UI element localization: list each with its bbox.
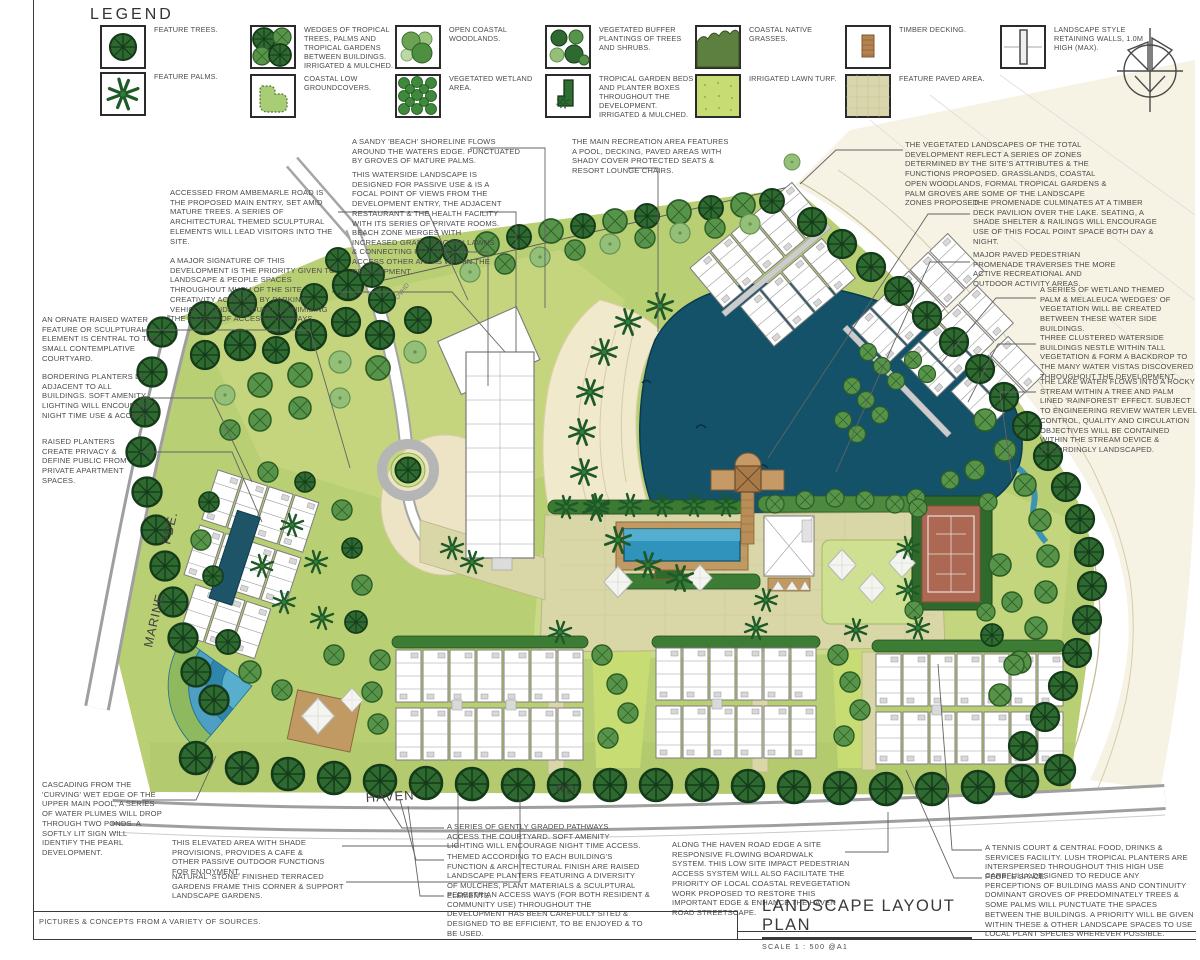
landscape-plan-sheet: { "legend": { "title": "LEGEND", "items"…: [0, 0, 1200, 960]
central-facility-building: [764, 516, 814, 591]
legend-item-lawn-turf: IRRIGATED LAWN TURF.: [695, 74, 845, 118]
annotation-bordering-planters: BORDERING PLANTERS LIE ADJACENT TO ALL B…: [42, 372, 154, 421]
footer-note: PICTURES & CONCEPTS FROM A VARIETY OF SO…: [39, 917, 261, 926]
annotation-waterside-landscape: THIS WATERSIDE LANDSCAPE IS DESIGNED FOR…: [352, 170, 502, 228]
legend-title: LEGEND: [90, 6, 174, 24]
feature-palms-icon: [100, 72, 146, 116]
legend-item-timber-decking: TIMBER DECKING.: [845, 25, 995, 69]
legend-label: COASTAL NATIVE GRASSES.: [749, 26, 845, 44]
open-woodlands-icon: [395, 25, 441, 69]
annotation-promenade-pavilion: THE PROMENADE CULMINATES AT A TIMBER DEC…: [973, 198, 1158, 247]
annotation-building-mass: CAREFULLY DESIGNED TO REDUCE ANY PERCEPT…: [985, 871, 1197, 939]
sheet-rule-bottom: [33, 939, 1196, 940]
lawn-turf-icon: [695, 74, 741, 118]
roundabout-tree: [396, 458, 421, 483]
legend-label: OPEN COASTAL WOODLANDS.: [449, 26, 545, 44]
annotation-sandy-beach: A SANDY 'BEACH' SHORELINE FLOWS AROUND T…: [352, 137, 522, 166]
annotation-major-signature: A MAJOR SIGNATURE OF THIS DEVELOPMENT IS…: [170, 256, 342, 324]
annotation-graded-pathways: A SERIES OF GENTLY GRADED PATHWAYS ACCES…: [447, 822, 642, 851]
annotation-stone-terraces: NATURAL 'STONE' FINISHED TERRACED GARDEN…: [172, 872, 347, 901]
legend-label: WEDGES OF TROPICAL TREES, PALMS AND TROP…: [304, 26, 400, 70]
legend-label: TROPICAL GARDEN BEDS AND PLANTER BOXES T…: [599, 75, 695, 119]
annotation-pedestrian-access: PEDESTRIAN ACCESS WAYS (FOR BOTH RESIDEN…: [447, 890, 652, 939]
wetland-area-icon: [395, 74, 441, 118]
tropical-wedges-icon: [250, 25, 296, 69]
road-label-haven: HAVEN: [365, 787, 415, 805]
road-label-rd: RD.: [556, 781, 582, 797]
annotation-main-entry: ACCESSED FROM AMBEMARLE ROAD IS THE PROP…: [170, 188, 340, 246]
legend-label: TIMBER DECKING.: [899, 26, 995, 35]
legend-item-vegetated-buffer: VEGETATED BUFFER PLANTINGS OF TREES AND …: [545, 25, 695, 69]
garden-beds-icon: [545, 74, 591, 118]
sheet-scale: SCALE 1 : 500 @A1: [762, 942, 972, 951]
legend-item-feature-trees: FEATURE TREES.: [100, 25, 250, 69]
annotation-recreation-area: THE MAIN RECREATION AREA FEATURES A POOL…: [572, 137, 732, 176]
legend-label: VEGETATED BUFFER PLANTINGS OF TREES AND …: [599, 26, 695, 53]
sheet-title: LANDSCAPE LAYOUT PLAN: [762, 897, 972, 939]
main-pool: [616, 522, 748, 570]
annotation-paved-promenade: MAJOR PAVED PEDESTRIAN PROMENADE TRAVERS…: [973, 250, 1123, 289]
legend-item-open-woodlands: OPEN COASTAL WOODLANDS.: [395, 25, 545, 69]
annotation-wetland-wedges: A SERIES OF WETLAND THEMED PALM & MELALE…: [1040, 285, 1180, 334]
paved-area-icon: [845, 74, 891, 118]
legend-label: FEATURE PALMS.: [154, 73, 250, 82]
title-rule: [737, 931, 1196, 932]
title-block: LANDSCAPE LAYOUT PLAN SCALE 1 : 500 @A1: [762, 897, 972, 951]
legend-item-garden-beds: TROPICAL GARDEN BEDS AND PLANTER BOXES T…: [545, 74, 695, 119]
legend-label: IRRIGATED LAWN TURF.: [749, 75, 845, 84]
timber-decking-icon: [845, 25, 891, 69]
feature-trees-icon: [100, 25, 146, 69]
legend-item-tropical-wedges: WEDGES OF TROPICAL TREES, PALMS AND TROP…: [250, 25, 400, 70]
retaining-walls-icon: [1000, 25, 1046, 69]
native-grasses-icon: [695, 25, 741, 69]
legend-item-coastal-groundcovers: COASTAL LOW GROUNDCOVERS.: [250, 74, 400, 118]
annotation-clustered-buildings: THREE CLUSTERED WATERSIDE BUILDINGS NEST…: [1040, 333, 1195, 382]
legend-item-native-grasses: COASTAL NATIVE GRASSES.: [695, 25, 845, 69]
legend-label: FEATURE PAVED AREA.: [899, 75, 995, 84]
legend-label: COASTAL LOW GROUNDCOVERS.: [304, 75, 400, 93]
vegetated-buffer-icon: [545, 25, 591, 69]
legend-label: VEGETATED WETLAND AREA.: [449, 75, 545, 93]
annotation-cascading-ponds: CASCADING FROM THE 'CURVING' WET EDGE OF…: [42, 780, 162, 858]
legend-item-feature-palms: FEATURE PALMS.: [100, 72, 250, 116]
footer-divider: [737, 911, 738, 940]
amenity-marker: [784, 154, 800, 170]
legend-label: FEATURE TREES.: [154, 26, 250, 35]
footer-rule-top: [33, 911, 737, 912]
coastal-groundcovers-icon: [250, 74, 296, 118]
annotation-rocky-stream: THE LAKE WATER FLOWS INTO A ROCKY STREAM…: [1040, 377, 1198, 455]
legend-item-paved-area: FEATURE PAVED AREA.: [845, 74, 995, 118]
annotation-water-feature: AN ORNATE RAISED WATER FEATURE OR SCULPT…: [42, 315, 162, 364]
firm-logo: [1115, 26, 1185, 117]
annotation-raised-planters: RAISED PLANTERS CREATE PRIVACY & DEFINE …: [42, 437, 142, 486]
sheet-border-left: [33, 0, 34, 940]
annotation-beach-zone: BEACH ZONE MERGES WITH INCREASED GRADE T…: [352, 228, 502, 277]
legend-item-wetland-area: VEGETATED WETLAND AREA.: [395, 74, 545, 118]
